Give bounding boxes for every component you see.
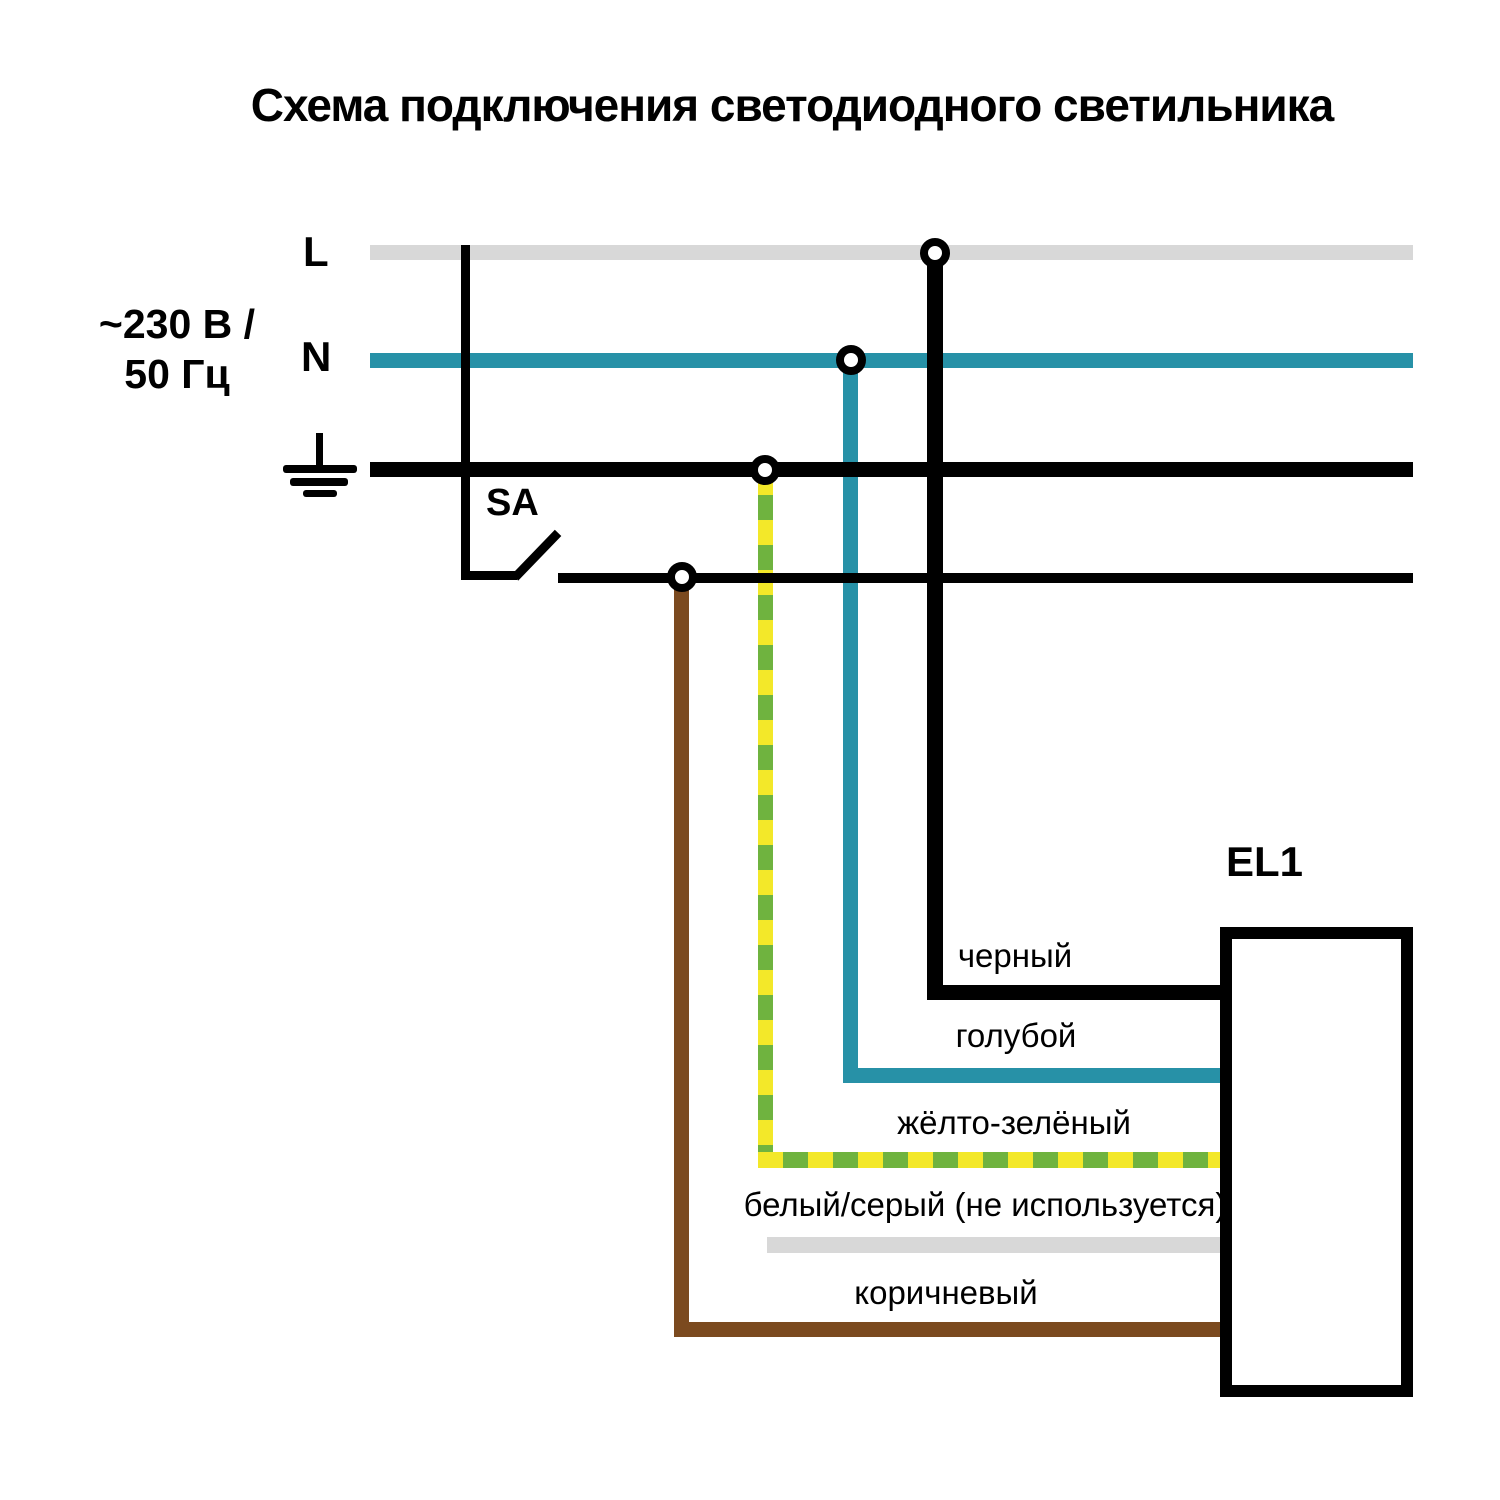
neutral-terminal-label: N bbox=[301, 333, 331, 381]
junction-node-switched bbox=[667, 562, 697, 592]
switch-label: SA bbox=[486, 482, 539, 525]
luminaire-label: EL1 bbox=[1226, 838, 1303, 886]
wire-label-white-gray: белый/серый (не используется) bbox=[744, 1186, 1227, 1224]
line-terminal-label: L bbox=[303, 228, 329, 276]
switch-blade bbox=[512, 530, 562, 581]
neutral-bus-wire bbox=[370, 353, 1413, 368]
brown-wire-horizontal bbox=[674, 1322, 1220, 1337]
wire-label-brown: коричневый bbox=[854, 1274, 1037, 1312]
junction-node-ground bbox=[750, 455, 780, 485]
yellow-green-wire-horizontal bbox=[758, 1152, 1220, 1168]
blue-wire-horizontal bbox=[843, 1068, 1220, 1083]
brown-wire-vertical bbox=[674, 577, 689, 1337]
junction-node-neutral bbox=[836, 345, 866, 375]
supply-voltage: ~230 В / bbox=[57, 299, 297, 349]
wire-label-blue: голубой bbox=[956, 1017, 1077, 1055]
white-gray-wire-stub bbox=[767, 1237, 1220, 1253]
ground-symbol-bar bbox=[283, 465, 357, 473]
black-wire-horizontal bbox=[927, 985, 1220, 1000]
switch-hinge-wire bbox=[461, 571, 517, 580]
luminaire-box bbox=[1220, 927, 1413, 1397]
line-bus-wire bbox=[370, 245, 1413, 260]
junction-node-line bbox=[920, 238, 950, 268]
ground-symbol-stub bbox=[316, 433, 323, 468]
ground-symbol-bar bbox=[303, 490, 337, 497]
ground-symbol-bar bbox=[290, 478, 348, 486]
diagram-title: Схема подключения светодиодного светильн… bbox=[251, 78, 1334, 132]
switch-feed-wire bbox=[461, 245, 470, 580]
wiring-diagram: Схема подключения светодиодного светильн… bbox=[0, 0, 1500, 1500]
ground-bus-wire bbox=[370, 462, 1413, 477]
wire-label-yellow-green: жёлто-зелёный bbox=[897, 1104, 1131, 1142]
wire-label-black: черный bbox=[958, 937, 1072, 975]
supply-rating-label: ~230 В / 50 Гц bbox=[57, 299, 297, 399]
supply-frequency: 50 Гц bbox=[57, 349, 297, 399]
black-wire-vertical bbox=[927, 253, 943, 1000]
